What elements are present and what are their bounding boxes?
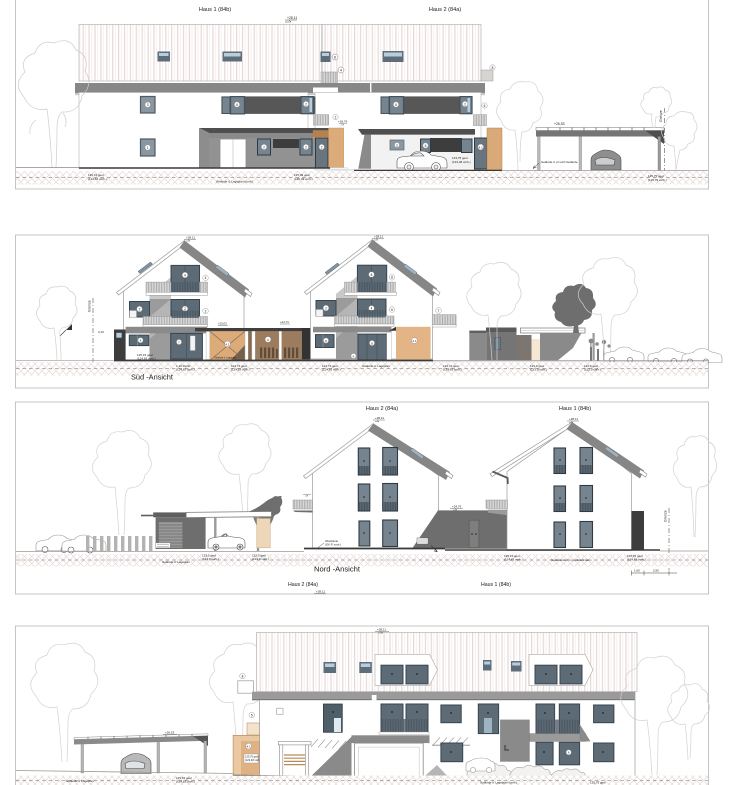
svg-text:+24,74: +24,74	[280, 320, 289, 324]
svg-text:Haus 2 (84a): Haus 2 (84a)	[288, 582, 318, 588]
svg-text:1,00: 1,00	[634, 569, 640, 573]
svg-text:(OK P. vorh.): (OK P. vorh.)	[325, 543, 341, 547]
svg-text:+28,11: +28,11	[375, 416, 384, 420]
svg-text:+24,76: +24,76	[452, 505, 462, 509]
svg-text:4: 4	[184, 273, 186, 277]
svg-text:(124,63 vorh.): (124,63 vorh.)	[627, 558, 646, 562]
svg-text:Gelände vorh. - punktiert dar.: Gelände vorh. - punktiert dar...	[551, 558, 592, 562]
svg-text:(124,63 vorh.): (124,63 vorh.)	[88, 177, 107, 181]
svg-text:8: 8	[371, 273, 373, 277]
svg-text:6: 6	[395, 103, 397, 107]
svg-text:5: 5	[251, 713, 253, 717]
svg-text:(123,0 vorh.): (123,0 vorh.)	[530, 368, 547, 372]
svg-text:6: 6	[236, 103, 238, 107]
svg-text:Grenze: Grenze	[88, 300, 92, 312]
svg-text:Haus 1 (84b): Haus 1 (84b)	[559, 406, 591, 412]
svg-text:(122,9 vorh.): (122,9 vorh.)	[252, 557, 269, 561]
svg-text:2: 2	[335, 115, 337, 119]
svg-text:2: 2	[464, 102, 466, 106]
svg-text:+25,03: +25,03	[218, 322, 227, 326]
svg-text:+28,11: +28,11	[186, 236, 195, 240]
svg-text:(122,9 vorh.): (122,9 vorh.)	[584, 368, 601, 372]
svg-text:4.1: 4.1	[247, 745, 252, 749]
svg-text:2: 2	[325, 306, 327, 310]
svg-text:Gelände lt. pl.vorh.Gelände: Gelände lt. pl.vorh.Gelände	[541, 160, 578, 164]
svg-text:(123,48 vorh.): (123,48 vorh.)	[452, 160, 471, 164]
svg-text:+28,11: +28,11	[377, 628, 386, 632]
svg-text:Gelände lt. Lageplan (vorh.): Gelände lt. Lageplan (vorh.)	[480, 781, 517, 785]
svg-text:3,10: 3,10	[98, 330, 104, 334]
svg-text:2: 2	[305, 102, 307, 106]
svg-text:(124,63 vorh.): (124,63 vorh.)	[231, 368, 250, 372]
svg-text:2: 2	[139, 307, 141, 311]
svg-text:(124,63 vorh.): (124,63 vorh.)	[443, 368, 462, 372]
svg-text:2: 2	[321, 145, 323, 149]
svg-text:4: 4	[205, 276, 207, 280]
svg-text:Nord -Ansicht: Nord -Ansicht	[314, 565, 361, 574]
svg-text:Haus 1 (84b): Haus 1 (84b)	[481, 582, 511, 588]
svg-text:(124,63 vorh.): (124,63 vorh.)	[322, 368, 341, 372]
svg-text:+26,53: +26,53	[554, 122, 565, 126]
svg-text:2,50: 2,50	[653, 569, 659, 573]
svg-text:(124,63 vorh.): (124,63 vorh.)	[137, 357, 156, 361]
svg-text:Haus 2 (84a): Haus 2 (84a)	[429, 7, 461, 13]
svg-text:2: 2	[205, 309, 207, 313]
svg-text:6: 6	[391, 308, 393, 312]
svg-text:8: 8	[391, 276, 393, 280]
svg-text:Gelände lt. Lageplan: Gelände lt. Lageplan	[214, 357, 237, 360]
svg-text:6: 6	[484, 104, 486, 108]
svg-text:Gelände lt. Lageplan: Gelände lt. Lageplan	[66, 779, 94, 783]
svg-text:2: 2	[305, 145, 307, 149]
svg-text:+18,76: +18,76	[338, 120, 348, 124]
svg-text:8: 8	[334, 56, 336, 60]
svg-text:7: 7	[438, 309, 440, 313]
svg-text:4.1: 4.1	[479, 145, 484, 149]
svg-text:+28,11: +28,11	[374, 235, 383, 239]
svg-text:(124,63 vorh.): (124,63 vorh.)	[176, 780, 195, 784]
svg-text:(124,63 vorh.): (124,63 vorh.)	[176, 368, 195, 372]
svg-text:(125,79 vorh.): (125,79 vorh.)	[648, 178, 667, 182]
svg-text:Gelände lt. Lageplan: Gelände lt. Lageplan	[362, 364, 390, 368]
svg-text:3: 3	[147, 103, 149, 107]
svg-text:+28,11: +28,11	[287, 16, 297, 20]
svg-text:(123,0 vorh.): (123,0 vorh.)	[202, 557, 219, 561]
svg-text:(125,03 vorh.): (125,03 vorh.)	[294, 177, 313, 181]
svg-text:2: 2	[263, 145, 265, 149]
svg-text:(124,63 vorh.): (124,63 vorh.)	[504, 558, 523, 562]
svg-text:8: 8	[492, 66, 494, 70]
svg-text:1: 1	[147, 146, 149, 150]
svg-text:8: 8	[242, 674, 244, 678]
svg-text:Gelände lt. Lageplan: Gelände lt. Lageplan	[162, 560, 190, 564]
svg-text:6: 6	[425, 144, 427, 148]
svg-text:125,75 geol: 125,75 geol	[590, 781, 606, 785]
svg-text:(123,48 vorh.): (123,48 vorh.)	[245, 758, 261, 762]
svg-text:4: 4	[340, 69, 342, 73]
svg-text:+28,11: +28,11	[316, 590, 325, 594]
svg-text:Gelände lt. Lageplan (vorh.): Gelände lt. Lageplan (vorh.)	[216, 180, 253, 184]
svg-text:Grenze: Grenze	[664, 510, 668, 522]
svg-text:+26,53: +26,53	[165, 731, 175, 735]
svg-text:Süd -Ansicht: Süd -Ansicht	[131, 373, 173, 382]
svg-text:4.1: 4.1	[412, 339, 417, 343]
svg-text:4.1: 4.1	[225, 342, 230, 346]
svg-text:+28,11: +28,11	[569, 417, 578, 421]
svg-text:Haus 2 (84a): Haus 2 (84a)	[366, 406, 398, 412]
svg-text:Haus 1 (84b): Haus 1 (84b)	[199, 7, 231, 13]
svg-text:123,75 geol: 123,75 geol	[245, 755, 259, 759]
